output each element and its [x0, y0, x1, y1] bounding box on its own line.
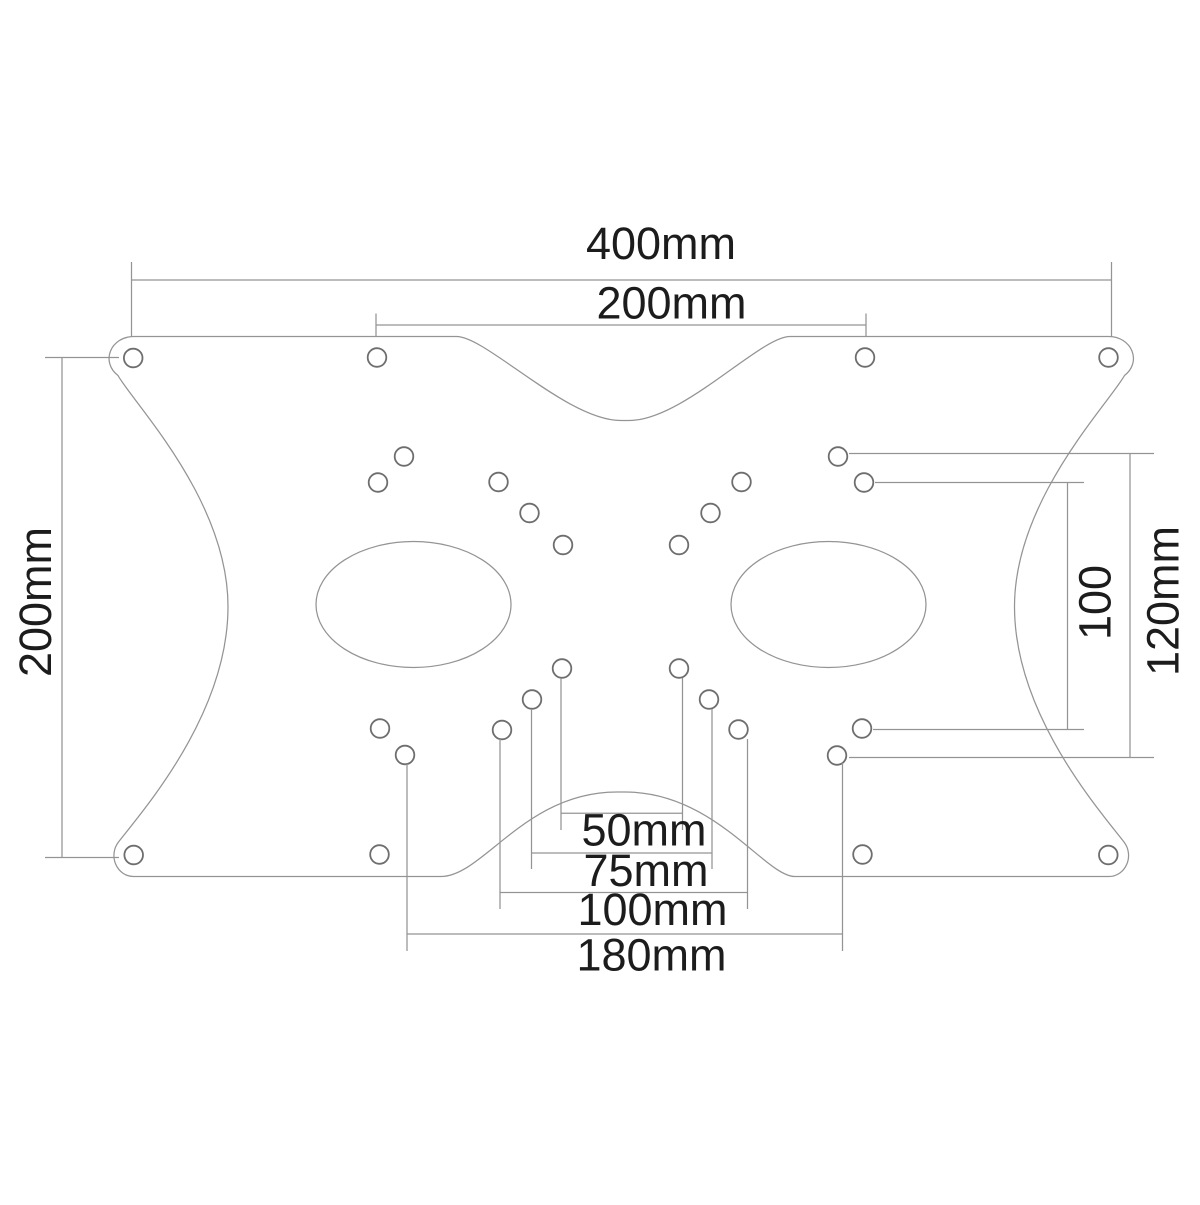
svg-text:400mm: 400mm: [586, 218, 736, 269]
svg-text:200mm: 200mm: [596, 278, 746, 329]
svg-text:100mm: 100mm: [577, 884, 727, 935]
svg-text:180mm: 180mm: [576, 930, 726, 981]
svg-text:120mm: 120mm: [1138, 526, 1189, 676]
svg-text:200mm: 200mm: [10, 527, 61, 677]
svg-text:100: 100: [1070, 565, 1121, 640]
